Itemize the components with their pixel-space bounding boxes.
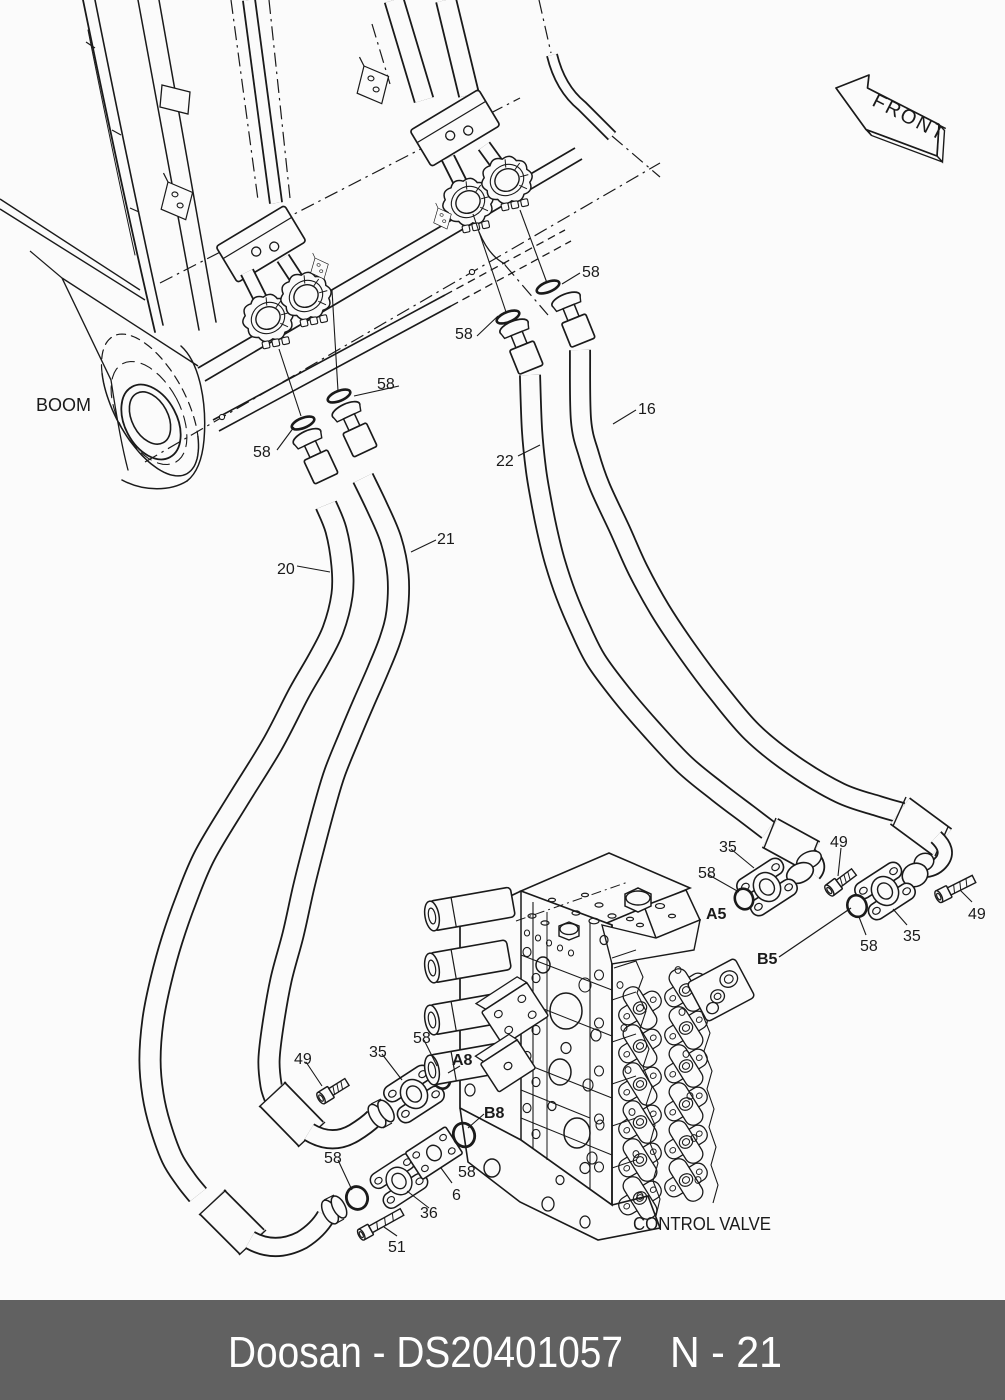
svg-text:49: 49 xyxy=(968,906,986,923)
svg-text:CONTROL VALVE: CONTROL VALVE xyxy=(633,1213,771,1234)
svg-text:BOOM: BOOM xyxy=(36,395,91,415)
svg-text:49: 49 xyxy=(830,834,848,851)
svg-text:N - 21: N - 21 xyxy=(670,1328,782,1377)
svg-text:16: 16 xyxy=(638,401,656,418)
svg-text:58: 58 xyxy=(253,444,271,461)
svg-text:58: 58 xyxy=(324,1150,342,1167)
svg-text:B5: B5 xyxy=(757,951,778,968)
svg-text:35: 35 xyxy=(369,1044,387,1061)
svg-text:58: 58 xyxy=(413,1030,431,1047)
svg-text:A5: A5 xyxy=(706,906,727,923)
svg-text:49: 49 xyxy=(294,1051,312,1068)
svg-text:58: 58 xyxy=(455,326,473,343)
svg-text:35: 35 xyxy=(903,928,921,945)
svg-text:A8: A8 xyxy=(452,1052,473,1069)
svg-text:51: 51 xyxy=(388,1239,406,1256)
svg-text:6: 6 xyxy=(452,1187,461,1204)
svg-text:22: 22 xyxy=(496,453,514,470)
svg-text:58: 58 xyxy=(698,865,716,882)
svg-text:58: 58 xyxy=(458,1164,476,1181)
svg-text:58: 58 xyxy=(582,264,600,281)
svg-text:B8: B8 xyxy=(484,1105,505,1122)
svg-text:20: 20 xyxy=(277,561,295,578)
svg-text:36: 36 xyxy=(420,1205,438,1222)
svg-text:21: 21 xyxy=(437,531,455,548)
svg-text:58: 58 xyxy=(860,938,878,955)
svg-text:58: 58 xyxy=(377,376,395,393)
svg-text:Doosan - DS20401057: Doosan - DS20401057 xyxy=(228,1328,623,1377)
svg-text:35: 35 xyxy=(719,839,737,856)
